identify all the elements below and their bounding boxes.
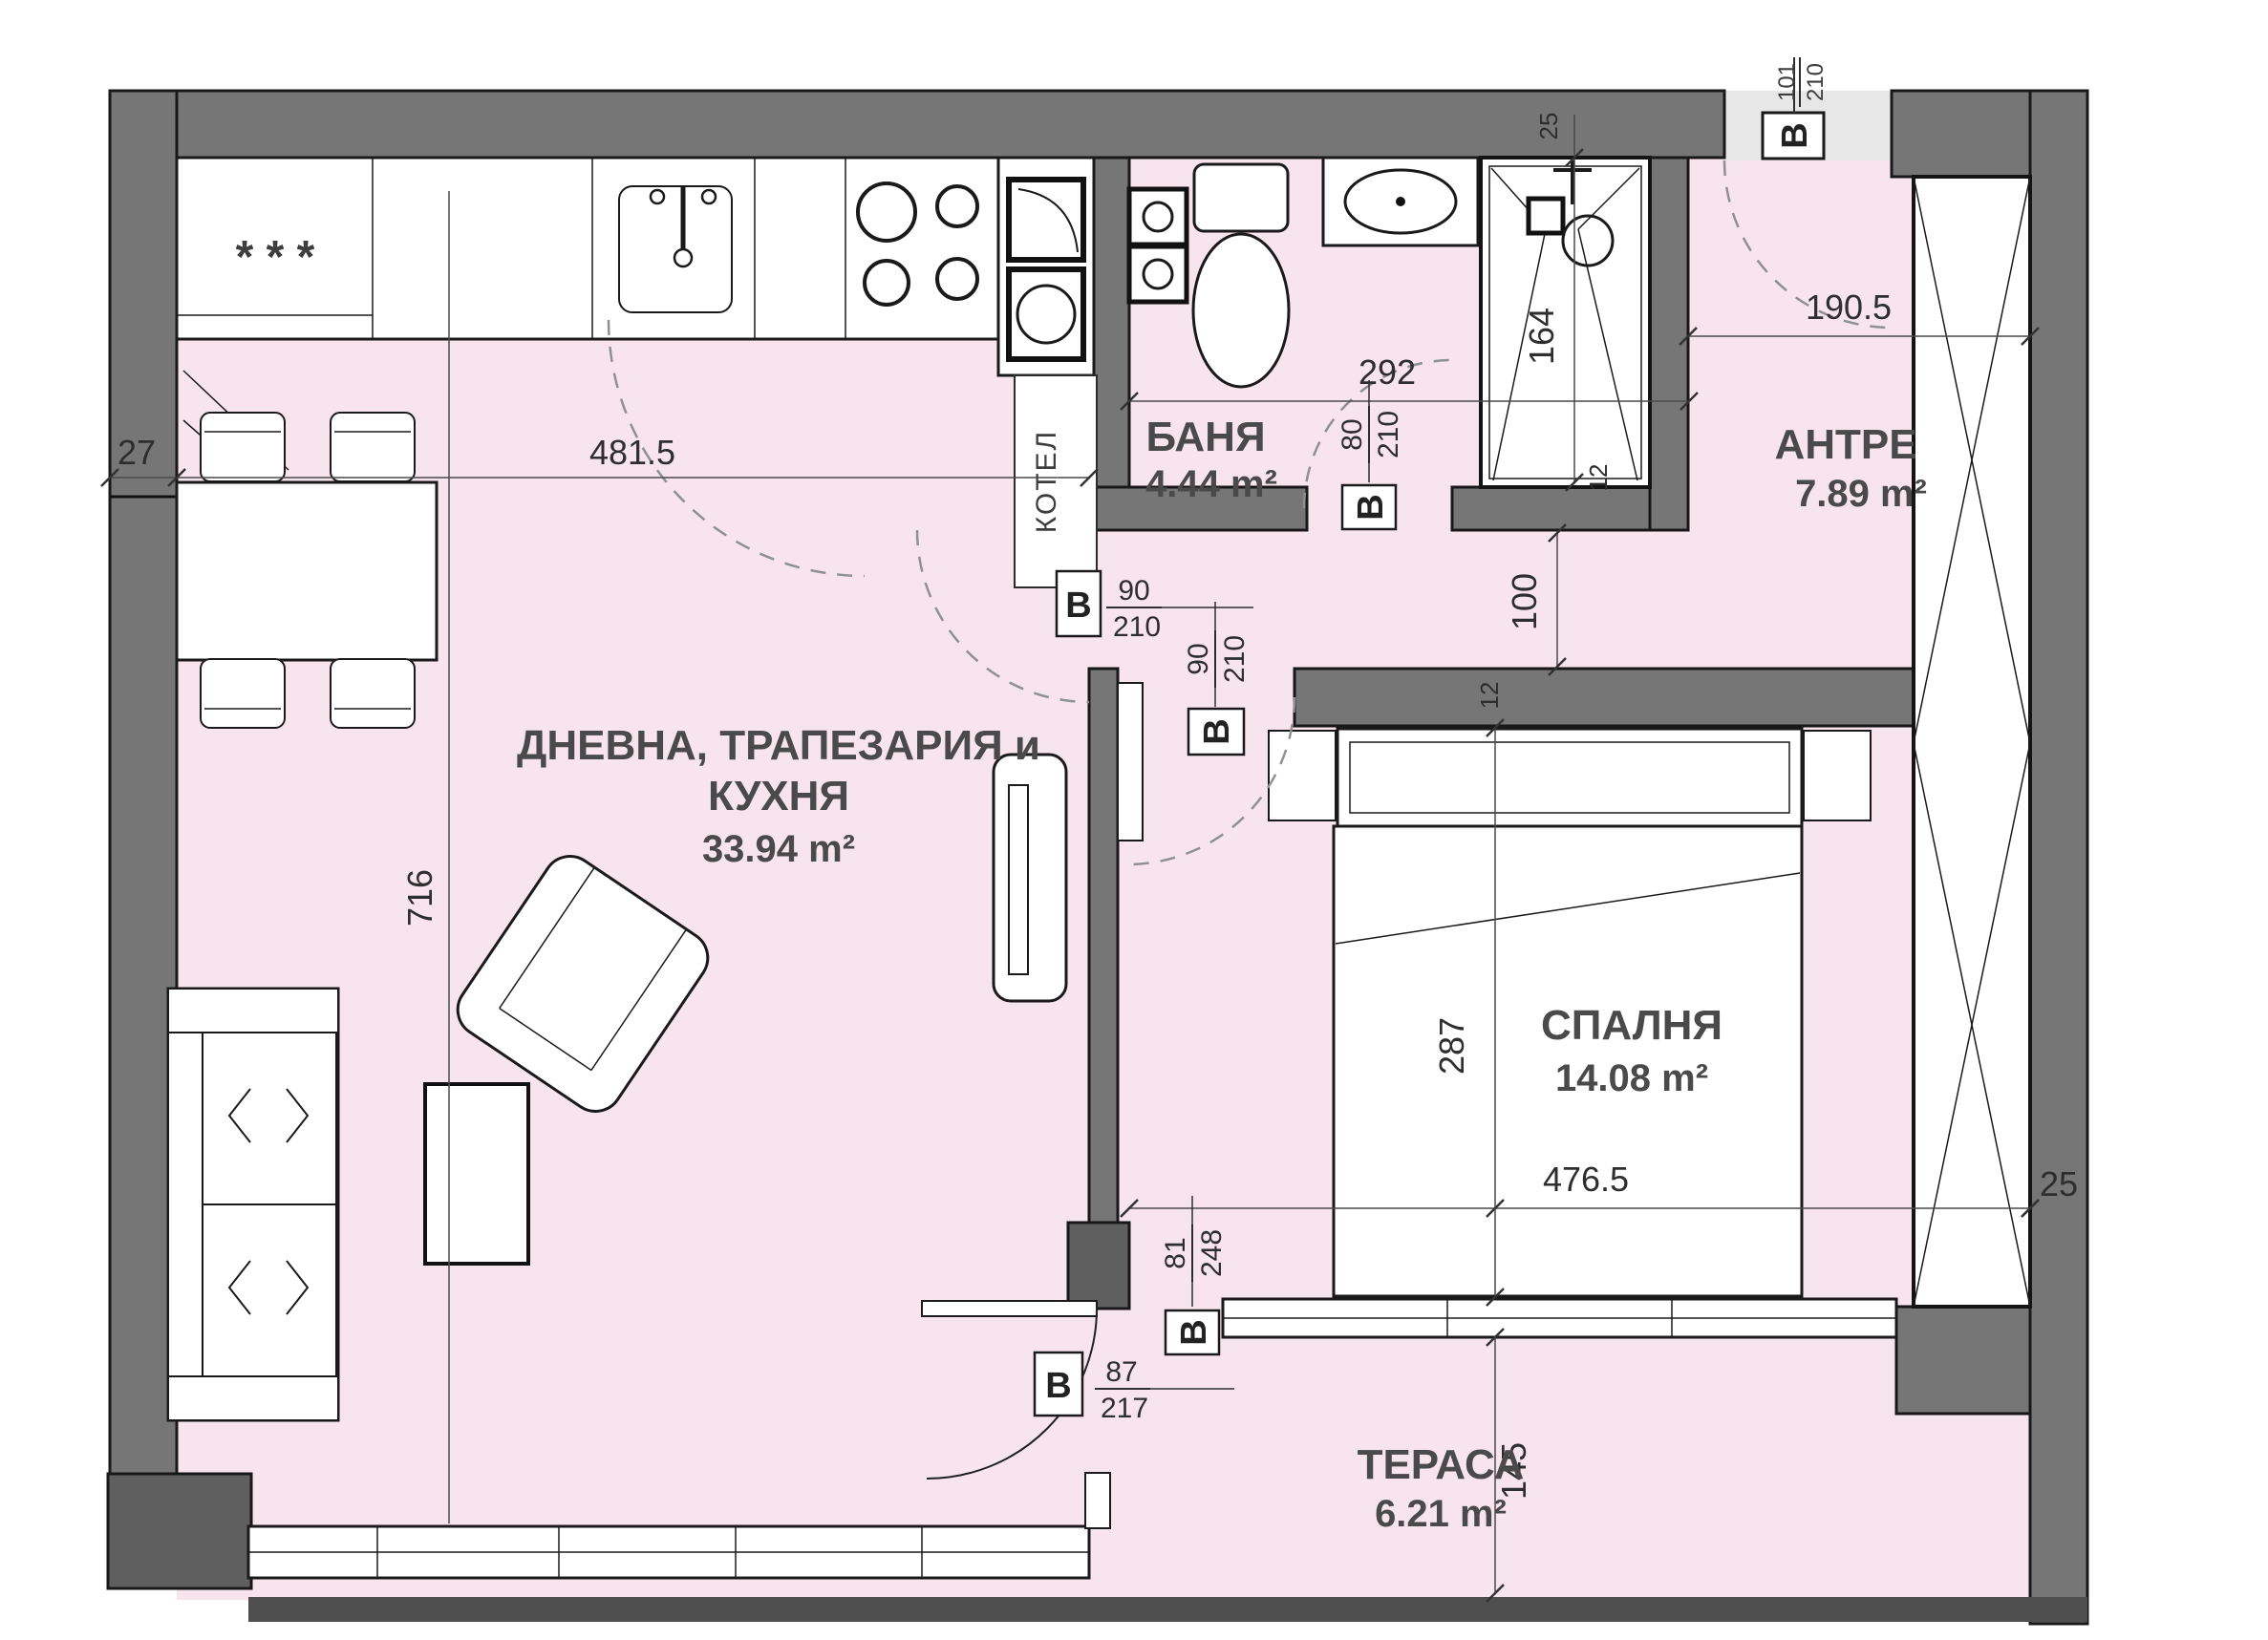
tall-appliance-unit — [998, 158, 1094, 375]
label-bath: БАНЯ — [1145, 414, 1265, 460]
dim-481: 481.5 — [589, 433, 675, 472]
label-living-1: ДНЕВНА, ТРАПЕЗАРИЯ и — [517, 722, 1040, 769]
sofa-cushion — [203, 1033, 336, 1204]
dining-table — [177, 482, 437, 660]
dim-287: 287 — [1432, 1017, 1471, 1075]
label-bath-area: 4.44 m² — [1145, 463, 1277, 505]
tv-unit-icon — [994, 755, 1066, 1001]
washing-machine-icon — [1009, 269, 1083, 359]
balcony-slab-edge — [248, 1597, 2087, 1622]
sink-basin — [619, 186, 732, 312]
wall-living-bedroom — [1089, 669, 1118, 1223]
dim-476: 476.5 — [1543, 1160, 1629, 1199]
closet-body — [1914, 177, 2030, 1307]
column-terrace — [1068, 1223, 1129, 1309]
vanity-drain — [1396, 197, 1405, 206]
dim-190: 190.5 — [1806, 288, 1892, 327]
terrace-door-jamb — [1085, 1473, 1110, 1528]
dim-27: 27 — [118, 433, 156, 472]
wardrobe-closet — [1914, 177, 2030, 1307]
nightstand-right — [1804, 731, 1871, 820]
column-bottom-left — [108, 1474, 251, 1588]
door-width: 90 — [1183, 643, 1214, 674]
bed-headboard — [1337, 729, 1802, 826]
wall-bedroom-north — [1294, 669, 1914, 726]
tv-cabinet — [994, 755, 1066, 1001]
shower-cabin-icon — [1481, 158, 1650, 487]
label-living-area: 33.94 m² — [702, 828, 855, 870]
vanity-sink-icon — [1323, 158, 1478, 245]
wall-right — [2030, 91, 2087, 1624]
door-tag: B — [1065, 586, 1091, 626]
door-width: 80 — [1337, 418, 1368, 450]
terrace-door-leaf — [922, 1301, 1097, 1316]
sofa-arm-top — [168, 989, 338, 1033]
nightstand-left — [1269, 731, 1336, 820]
door-tag: B — [1045, 1366, 1071, 1406]
dim-164: 164 — [1522, 308, 1561, 365]
tv-screen — [1009, 785, 1028, 974]
sofa-backrest — [168, 1033, 203, 1376]
door-tag: B — [1174, 1319, 1214, 1345]
coffee-table — [425, 1084, 528, 1264]
dim-716: 716 — [400, 869, 439, 926]
sofa-arm-bottom — [168, 1376, 338, 1420]
door-height: 210 — [1803, 63, 1829, 101]
door-width: 81 — [1160, 1237, 1191, 1268]
bedroom-door-leaf — [1118, 683, 1143, 841]
wall-stub-bottom-right — [1896, 1307, 2030, 1414]
door-tag: B — [1351, 494, 1391, 520]
floorplan-drawing: * * * КОТЕЛ — [0, 0, 2268, 1640]
dining-chair — [331, 413, 415, 481]
label-living-2: КУХНЯ — [708, 773, 849, 820]
door-width: 101 — [1774, 63, 1800, 101]
wall-bath-antre — [1650, 158, 1688, 530]
sofa-cushion — [203, 1204, 336, 1376]
dining-chair — [331, 659, 415, 728]
wall-fixture-box — [1129, 246, 1187, 302]
door-height: 210 — [1113, 611, 1161, 643]
dim-100: 100 — [1505, 573, 1544, 630]
toilet-tank — [1194, 164, 1288, 231]
wall-top — [110, 91, 1724, 158]
door-height: 248 — [1196, 1229, 1228, 1277]
floorplan-page: * * * КОТЕЛ — [0, 0, 2268, 1640]
dim-12-bedroom: 12 — [1475, 682, 1504, 710]
oven-icon — [1009, 180, 1083, 260]
dining-chair — [201, 413, 285, 481]
sofa-icon — [168, 989, 338, 1420]
boiler-label: КОТЕЛ — [1031, 430, 1062, 534]
dim-292: 292 — [1359, 352, 1416, 392]
label-bedroom-area: 14.08 m² — [1555, 1057, 1708, 1099]
dim-12-shower: 12 — [1584, 464, 1613, 492]
fridge-icon: * * * — [236, 232, 315, 283]
toilet-icon — [1193, 164, 1289, 387]
door-height: 210 — [1219, 635, 1251, 683]
label-antre: АНТРЕ — [1774, 421, 1916, 468]
label-antre-area: 7.89 m² — [1795, 473, 1927, 515]
dining-chair — [201, 659, 285, 728]
door-tag: B — [1775, 122, 1815, 148]
door-width: 90 — [1118, 575, 1149, 607]
dim-25-shower: 25 — [1534, 113, 1563, 140]
toilet-bowl — [1193, 234, 1289, 387]
label-bedroom: СПАЛНЯ — [1541, 1002, 1722, 1049]
door-width: 87 — [1105, 1356, 1137, 1388]
dim-25-right: 25 — [2040, 1164, 2078, 1203]
door-height: 210 — [1373, 411, 1404, 458]
sink-icon — [619, 186, 732, 312]
wall-fixture-box — [1129, 189, 1187, 245]
shower-drain — [1529, 199, 1563, 233]
label-terrace-area: 6.21 m² — [1375, 1493, 1507, 1535]
label-terrace: ТЕРАСА — [1358, 1441, 1525, 1488]
door-tag: B — [1197, 718, 1237, 744]
door-height: 217 — [1101, 1393, 1148, 1424]
